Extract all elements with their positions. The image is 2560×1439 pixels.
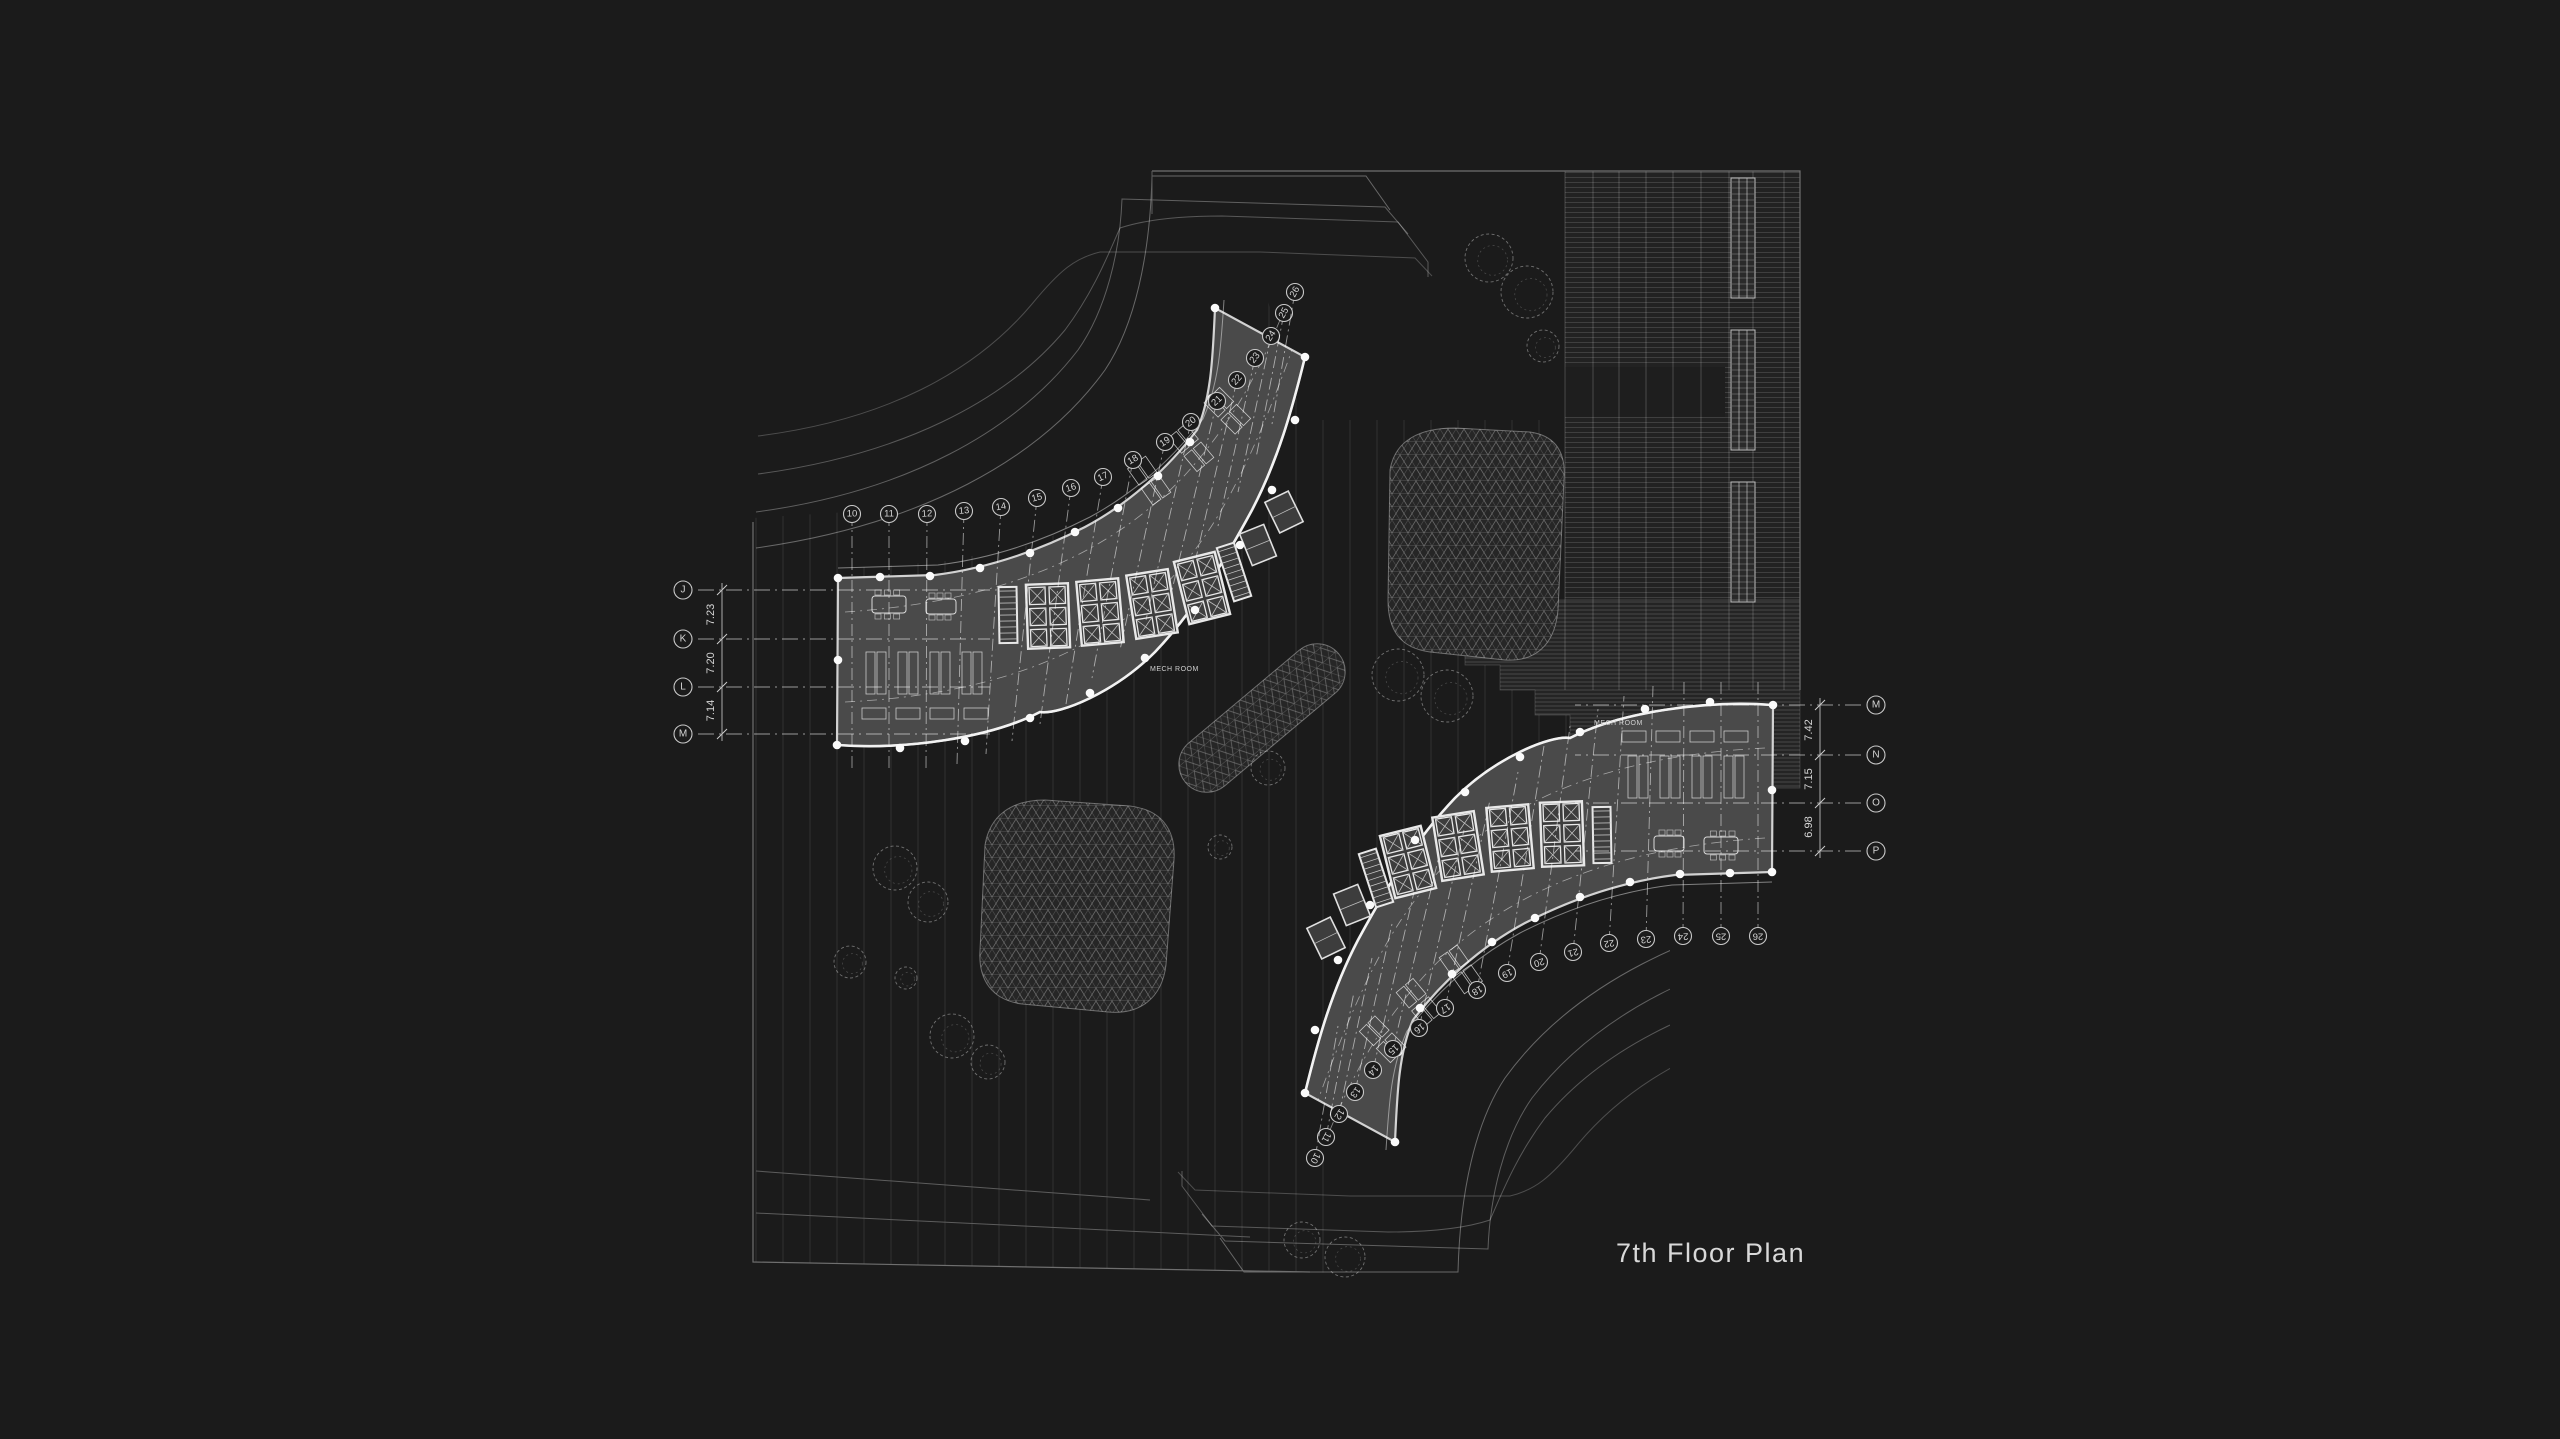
grid-bubble-label: 13 <box>958 505 970 517</box>
grid-bubble-label: 26 <box>1753 931 1764 942</box>
grid-bubble-label: M <box>679 729 687 740</box>
grid-bubble-label: 14 <box>995 501 1007 514</box>
grid-bubble-label: L <box>680 682 686 693</box>
grid-bubble-label: O <box>1872 798 1880 809</box>
dimension-label: 7.15 <box>1803 768 1815 789</box>
room-label-mech-lower: MECH ROOM <box>1594 720 1643 727</box>
grid-bubble-label: 11 <box>884 509 894 520</box>
dimension-label: 7.42 <box>1803 719 1815 740</box>
grid-bubble-label: M <box>1872 700 1880 711</box>
escalator-shaft <box>1731 330 1755 450</box>
grid-bubble-label: 25 <box>1716 931 1727 942</box>
grid-bubble-label: J <box>681 585 686 596</box>
dimension-label: 7.23 <box>705 604 717 625</box>
dimension-label: 6.98 <box>1803 816 1815 837</box>
room-label-mech-upper: MECH ROOM <box>1150 666 1199 673</box>
dimension-label: 7.20 <box>705 652 717 673</box>
grid-bubble-label: 10 <box>847 509 858 520</box>
escalator-shaft <box>1731 482 1755 602</box>
grid-bubble-label: 23 <box>1640 933 1652 945</box>
dimension-label: 7.14 <box>705 700 717 721</box>
escalator-shaft <box>1731 178 1755 298</box>
grid-bubble-label: 24 <box>1677 930 1688 941</box>
drawing-title: 7th Floor Plan <box>1616 1238 1805 1268</box>
grid-bubble-label: 22 <box>1603 937 1615 950</box>
grid-bubble-label: N <box>1872 750 1879 761</box>
floor-plan-canvas: 1011121314151617181920212223242526 26252… <box>0 0 2560 1439</box>
grid-bubble-label: K <box>680 634 687 645</box>
grid-bubble-label: P <box>1873 846 1880 857</box>
grid-bubble-label: 12 <box>921 508 932 519</box>
